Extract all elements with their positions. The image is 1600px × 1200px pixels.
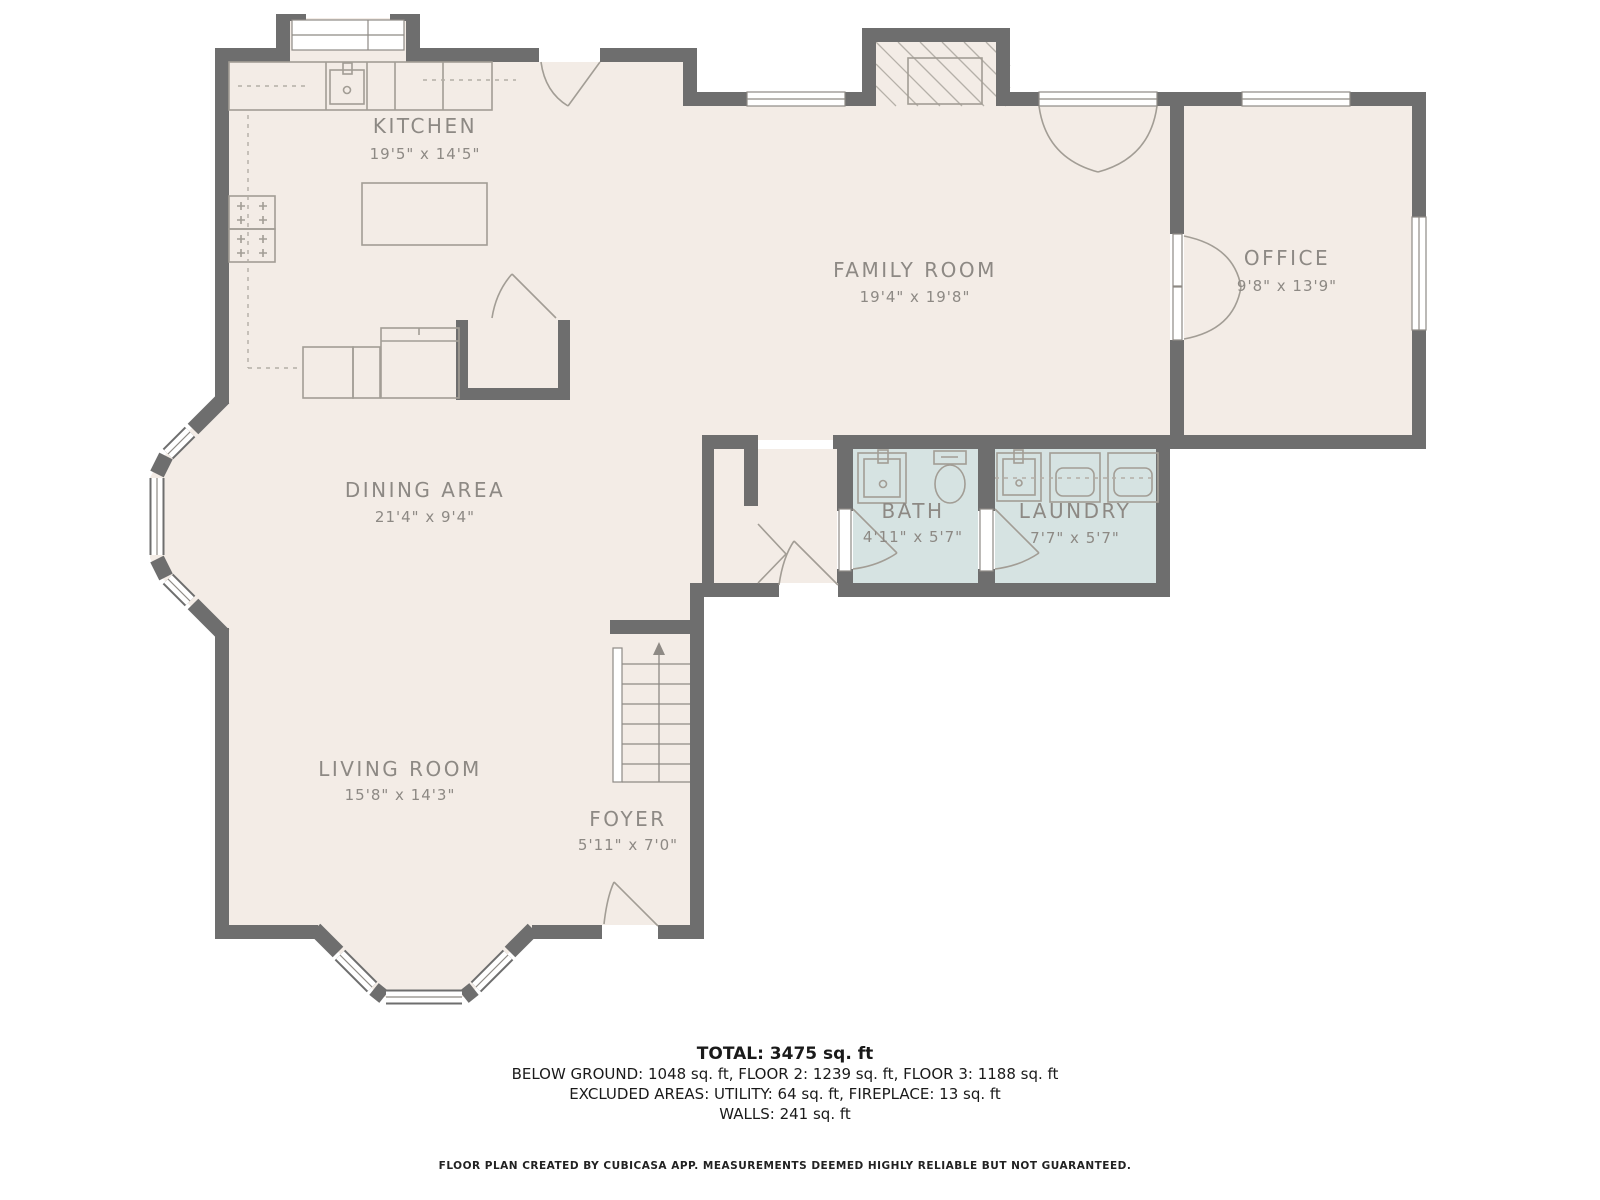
floor-plan: KITCHEN 19'5" x 14'5" FAMILY ROOM 19'4" … <box>0 0 1600 1200</box>
office-label: OFFICE <box>1244 246 1330 270</box>
walls-area-line: WALLS: 241 sq. ft <box>0 1104 1570 1124</box>
floor-plan-page: KITCHEN 19'5" x 14'5" FAMILY ROOM 19'4" … <box>0 0 1600 1200</box>
area-summary: TOTAL: 3475 sq. ft BELOW GROUND: 1048 sq… <box>0 1044 1570 1124</box>
excluded-areas-line: EXCLUDED AREAS: UTILITY: 64 sq. ft, FIRE… <box>0 1084 1570 1104</box>
floor-areas-line: BELOW GROUND: 1048 sq. ft, FLOOR 2: 1239… <box>0 1064 1570 1084</box>
floor-areas <box>150 18 1412 997</box>
dining-area-dims: 21'4" x 9'4" <box>375 508 475 526</box>
family-room-label: FAMILY ROOM <box>833 258 997 282</box>
office-dims: 9'8" x 13'9" <box>1237 277 1337 295</box>
laundry-dims: 7'7" x 5'7" <box>1030 529 1120 547</box>
family-room-dims: 19'4" x 19'8" <box>860 288 971 306</box>
bath-label: BATH <box>881 499 944 523</box>
laundry-label: LAUNDRY <box>1019 499 1132 523</box>
living-room-dims: 15'8" x 14'3" <box>345 786 456 804</box>
living-room-label: LIVING ROOM <box>318 757 482 781</box>
credit-line: FLOOR PLAN CREATED BY CUBICASA APP. MEAS… <box>0 1160 1570 1172</box>
stair-handrail <box>613 648 622 782</box>
total-area-line: TOTAL: 3475 sq. ft <box>0 1044 1570 1064</box>
foyer-dims: 5'11" x 7'0" <box>578 836 678 854</box>
kitchen-dims: 19'5" x 14'5" <box>370 145 481 163</box>
dining-area-label: DINING AREA <box>345 478 505 502</box>
kitchen-label: KITCHEN <box>373 114 477 138</box>
bath-dims: 4'11" x 5'7" <box>863 528 963 546</box>
foyer-label: FOYER <box>589 807 666 831</box>
